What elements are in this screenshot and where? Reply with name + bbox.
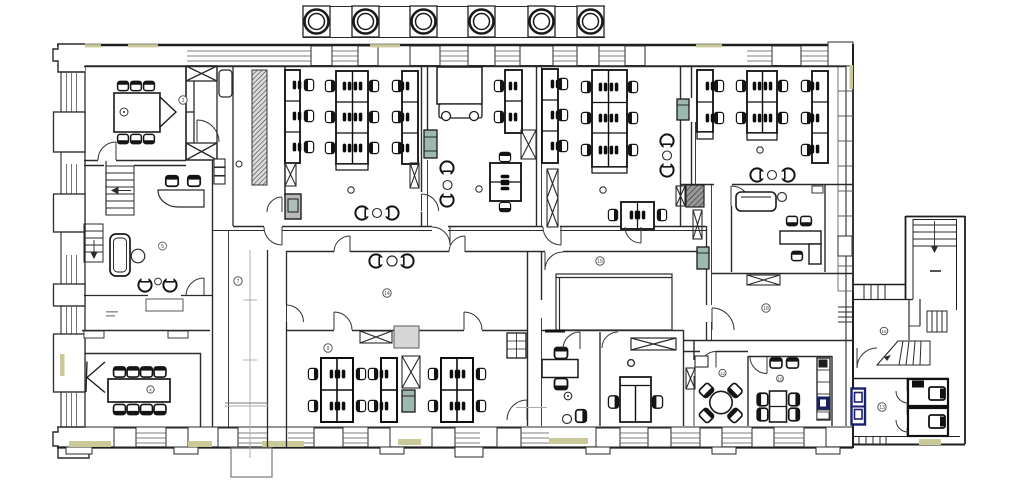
svg-text:10: 10 [777,377,783,382]
svg-text:16: 16 [881,329,887,334]
svg-text:7: 7 [237,279,240,285]
svg-text:13: 13 [879,405,885,411]
svg-text:9: 9 [327,346,330,352]
svg-text:12: 12 [720,371,726,376]
svg-text:2: 2 [182,98,185,104]
svg-text:15: 15 [597,259,603,265]
svg-text:5: 5 [161,244,164,250]
svg-text:18: 18 [763,306,769,312]
svg-text:14: 14 [384,291,390,297]
